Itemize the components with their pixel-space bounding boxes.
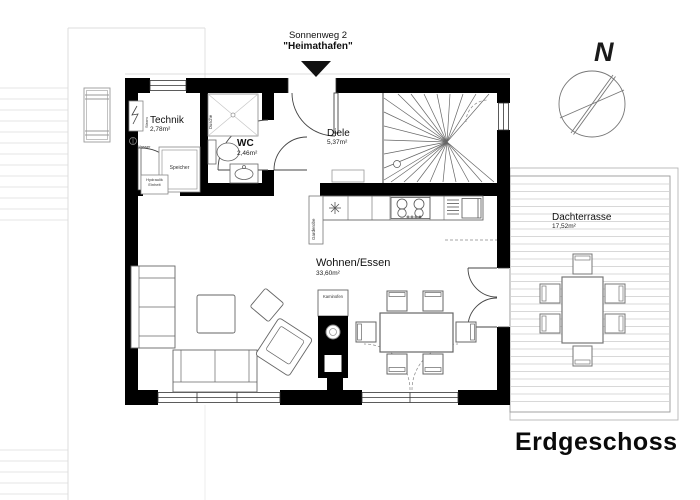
wood-stove <box>318 290 348 378</box>
room-label-dachterrasse: Dachterrasse <box>552 213 611 224</box>
dusche-label: Dusche <box>209 115 213 129</box>
floorplan-page: Sonnenweg 2 "Heimathafen" Technik 2,78m²… <box>0 0 700 500</box>
speicher-label: Speicher <box>159 166 200 171</box>
terrace <box>510 168 678 420</box>
hydraulik-label-line2: Einheit <box>141 183 168 187</box>
garderobe-label: Garderobe <box>312 218 317 240</box>
toilet <box>208 140 239 164</box>
room-area-dachterrasse: 17,52m² <box>552 224 576 231</box>
entrance-arrow-icon <box>301 61 331 77</box>
dining-set <box>356 291 476 374</box>
armchair <box>255 318 313 377</box>
north-label: N <box>594 38 614 66</box>
room-area-wc: 2,46m² <box>237 151 257 158</box>
outdoor-unit <box>84 88 110 142</box>
room-label-wohnen-essen: Wohnen/Essen <box>316 258 390 270</box>
floorplan-drawing <box>0 0 700 500</box>
floor-title: Erdgeschoss <box>515 429 678 455</box>
room-area-technik: 2,78m² <box>150 127 170 134</box>
sofa-left <box>131 266 175 348</box>
staircase <box>383 93 494 183</box>
sofa-bottom <box>173 350 257 392</box>
room-label-wc: WC <box>237 139 254 150</box>
room-area-wohnen-essen: 33,60m² <box>316 271 340 278</box>
kaminofen-label: Kaminofen <box>318 295 348 299</box>
room-label-diele: Diele <box>327 129 350 140</box>
hall-cabinet <box>332 170 364 182</box>
kitchen <box>309 196 483 244</box>
coffee-table <box>197 295 235 333</box>
living-furniture <box>131 266 313 392</box>
street-label: Sonnenweg 2 <box>253 31 383 41</box>
shower <box>208 94 258 136</box>
wasser-label: Wasser <box>137 145 150 149</box>
wc-sink <box>230 164 258 183</box>
house-name-label: "Heimathafen" <box>253 42 383 53</box>
room-area-diele: 5,37m² <box>327 140 347 147</box>
room-label-technik: Technik <box>150 116 184 127</box>
compass-icon <box>559 71 625 137</box>
side-table <box>250 288 284 322</box>
strom-label: Strom <box>145 117 149 128</box>
